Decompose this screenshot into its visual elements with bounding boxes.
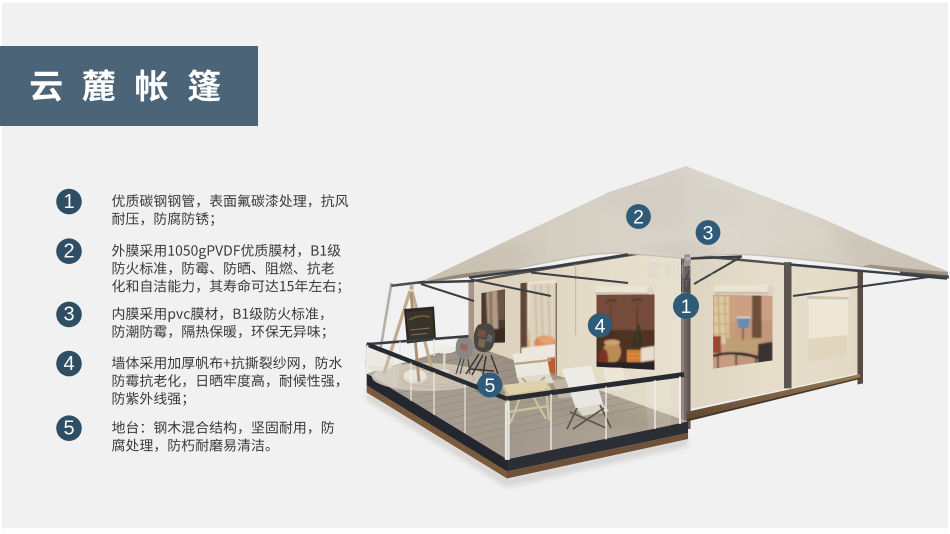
svg-text:2: 2	[63, 241, 74, 263]
svg-text:1: 1	[63, 191, 74, 213]
svg-text:3: 3	[63, 304, 74, 326]
svg-text:4: 4	[63, 353, 74, 375]
svg-text:XUELI TENT: XUELI TENT	[645, 279, 713, 289]
svg-text:1: 1	[681, 296, 692, 318]
svg-text:5: 5	[63, 418, 74, 440]
svg-text:4: 4	[595, 315, 606, 337]
svg-text:3: 3	[703, 223, 714, 245]
svg-text:5: 5	[484, 375, 495, 397]
svg-text:2: 2	[633, 207, 644, 229]
